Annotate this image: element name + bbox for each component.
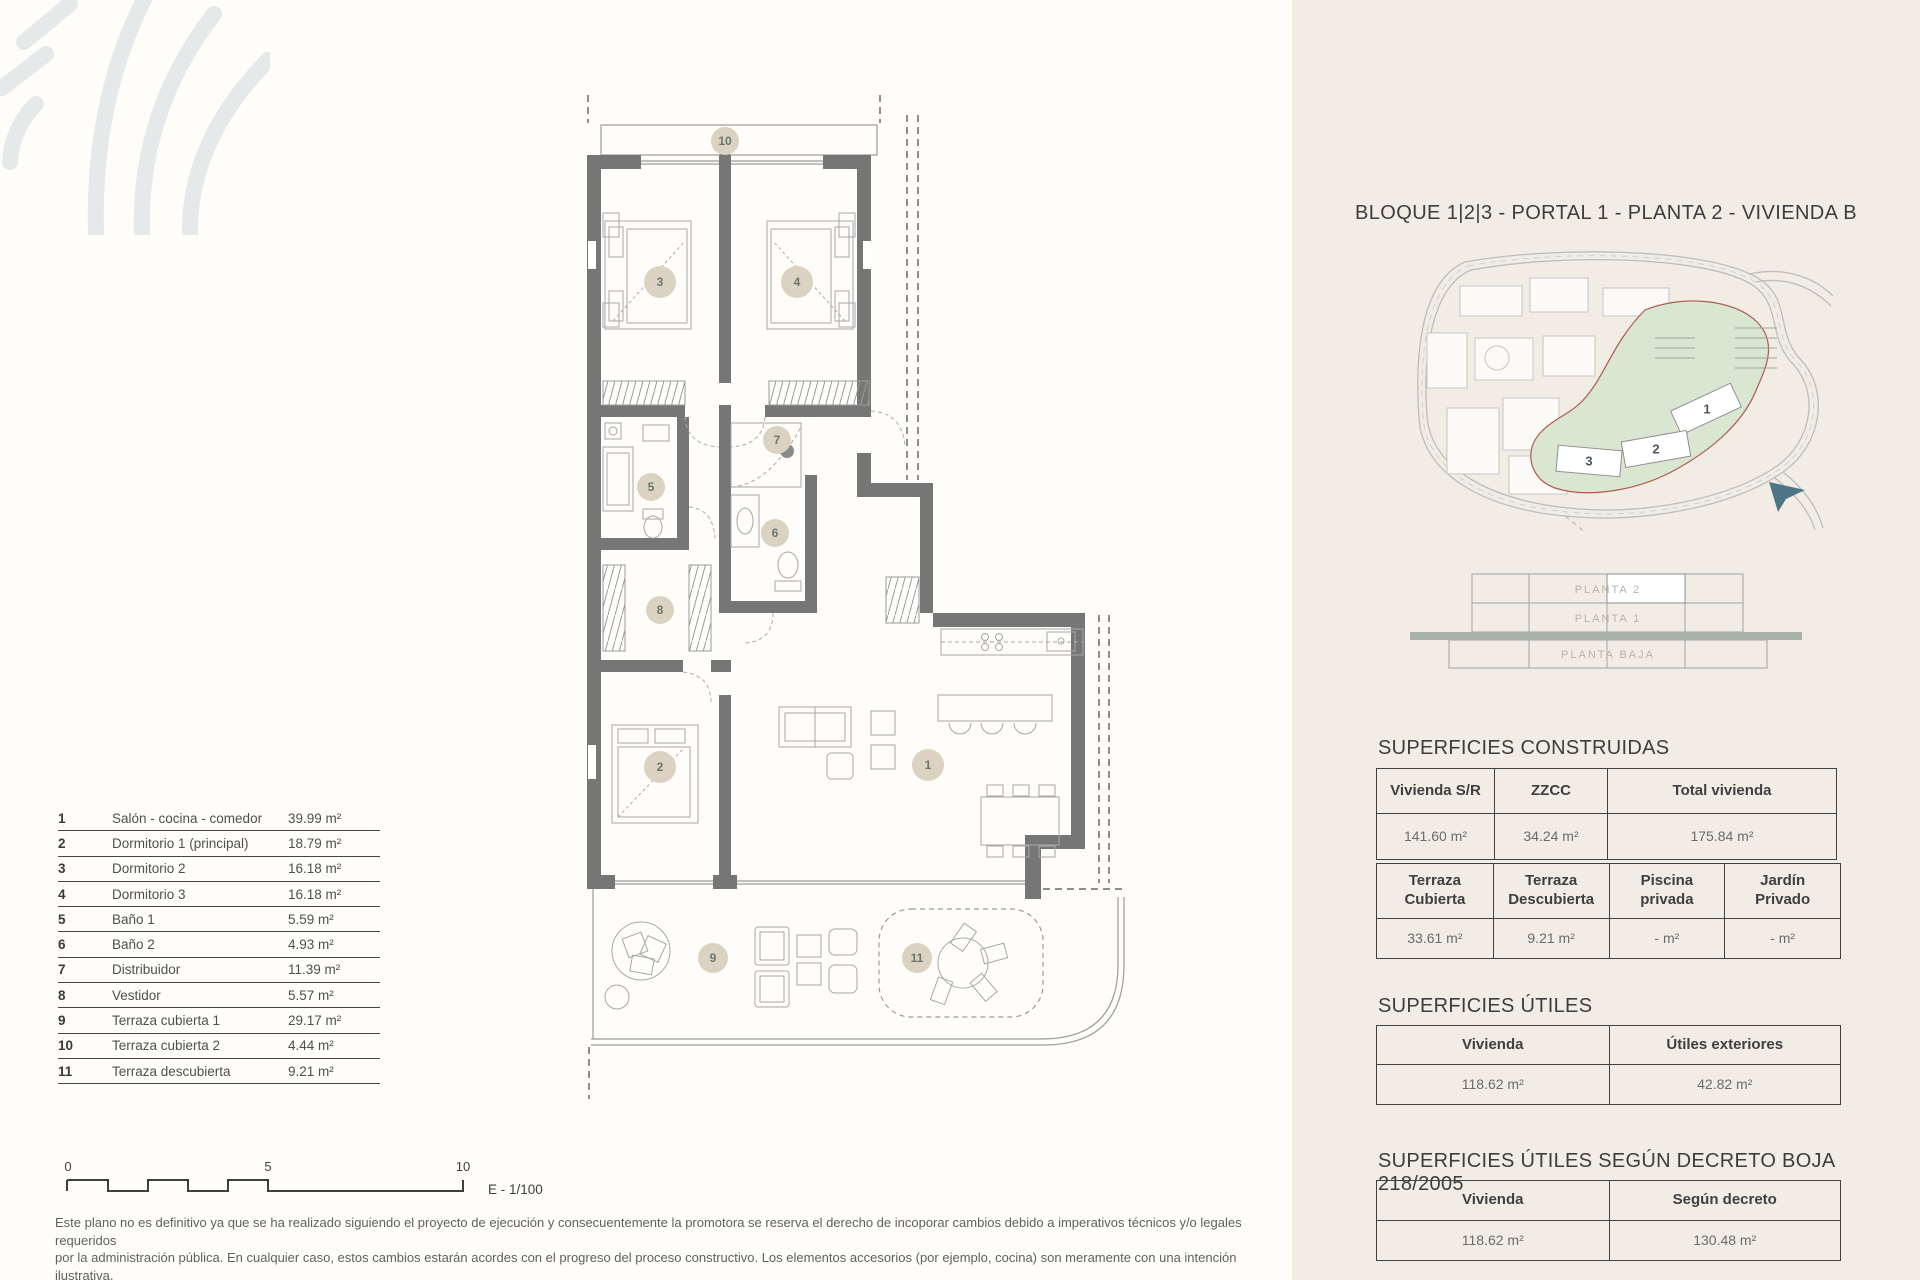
room-badge-9: 9 [710, 951, 717, 965]
col-header: Piscina privada [1609, 864, 1725, 918]
col-header: Útiles exteriores [1609, 1026, 1841, 1064]
door-arcs [683, 411, 905, 703]
table-value: - m² [1609, 918, 1725, 958]
table-value: 118.62 m² [1377, 1220, 1609, 1260]
legend-row: 3Dormitorio 216.18 m² [58, 857, 380, 882]
legend-row: 2Dormitorio 1 (principal)18.79 m² [58, 831, 380, 856]
legend-row: 6Baño 24.93 m² [58, 932, 380, 957]
table-construidas-exterior: Terraza Cubierta Terraza Descubierta Pis… [1376, 863, 1841, 959]
legend-row: 8Vestidor5.57 m² [58, 983, 380, 1008]
block-label-1: 1 [1703, 402, 1710, 417]
table-value: 34.24 m² [1494, 813, 1607, 859]
living-furniture [779, 707, 1059, 857]
scale-tick-10: 10 [456, 1159, 470, 1174]
table-value: - m² [1724, 918, 1840, 958]
kitchen [938, 629, 1083, 734]
legend-row: 7Distribuidor11.39 m² [58, 958, 380, 983]
scale-tick-0: 0 [64, 1159, 71, 1174]
table-value: 42.82 m² [1609, 1064, 1841, 1104]
table-value: 175.84 m² [1607, 813, 1836, 859]
col-header: Según decreto [1609, 1181, 1841, 1220]
terrace-outline [591, 889, 1124, 1045]
scale-ratio-label: E - 1/100 [488, 1182, 543, 1197]
col-header: Vivienda [1377, 1181, 1609, 1220]
stack-level-planta-baja: PLANTA BAJA [1561, 649, 1655, 661]
legend-row: 1Salón - cocina - comedor39.99 m² [58, 806, 380, 831]
scale-bar: 0 5 10 E - 1/100 [60, 1158, 620, 1204]
legend-row: 4Dormitorio 316.18 m² [58, 882, 380, 907]
bedroom-3-furniture [603, 213, 691, 329]
room-badge-1: 1 [925, 758, 932, 772]
terrace-furniture [605, 922, 1008, 1009]
unit-title: BLOQUE 1|2|3 - PORTAL 1 - PLANTA 2 - VIV… [1292, 202, 1920, 225]
info-panel: BLOQUE 1|2|3 - PORTAL 1 - PLANTA 2 - VIV… [1292, 0, 1920, 1280]
room-legend: 1Salón - cocina - comedor39.99 m² 2Dormi… [58, 806, 380, 1084]
col-header: Vivienda [1377, 1026, 1609, 1064]
ground-line [1410, 632, 1802, 640]
disclaimer: Este plano no es definitivo ya que se ha… [55, 1214, 1270, 1280]
heading-superficies-construidas: SUPERFICIES CONSTRUIDAS [1378, 737, 1669, 760]
block-label-2: 2 [1652, 442, 1659, 457]
room-badge-11: 11 [911, 951, 924, 965]
col-header: Jardín Privado [1724, 864, 1840, 918]
legend-row: 5Baño 15.59 m² [58, 907, 380, 932]
col-header: Terraza Descubierta [1493, 864, 1609, 918]
floor-plan: 1 2 3 4 5 6 7 8 9 10 11 [573, 95, 1183, 1105]
legend-row: 10Terraza cubierta 24.44 m² [58, 1034, 380, 1059]
terrace-10-outline [601, 125, 877, 155]
table-value: 118.62 m² [1377, 1064, 1609, 1104]
legend-row: 9Terraza cubierta 129.17 m² [58, 1008, 380, 1033]
glazing [615, 161, 1025, 884]
col-header: Total vivienda [1607, 769, 1836, 813]
room-badge-4: 4 [794, 275, 801, 289]
stack-level-planta-1: PLANTA 1 [1575, 613, 1642, 625]
table-value: 33.61 m² [1377, 918, 1493, 958]
table-decreto: Vivienda Según decreto 118.62 m² 130.48 … [1376, 1180, 1841, 1261]
stack-level-planta-2: PLANTA 2 [1575, 584, 1642, 596]
site-highlight-parcel: 1 2 3 [1531, 301, 1777, 493]
scale-tick-5: 5 [264, 1159, 271, 1174]
room-badge-3: 3 [657, 275, 664, 289]
room-badge-8: 8 [657, 603, 664, 617]
col-header: Terraza Cubierta [1377, 864, 1493, 918]
bedroom-4-furniture [767, 213, 855, 329]
room-badge-5: 5 [648, 480, 655, 494]
table-construidas-main: Vivienda S/R ZZCC Total vivienda 141.60 … [1376, 768, 1837, 860]
col-header: ZZCC [1494, 769, 1607, 813]
col-header: Vivienda S/R [1377, 769, 1494, 813]
table-value: 141.60 m² [1377, 813, 1494, 859]
site-plan: 1 2 3 [1405, 248, 1835, 533]
floor-stack-diagram: PLANTA 2 PLANTA 1 PLANTA BAJA [1408, 565, 1808, 675]
block-label-3: 3 [1585, 454, 1592, 469]
legend-row: 11Terraza descubierta9.21 m² [58, 1059, 380, 1084]
heading-superficies-utiles: SUPERFICIES ÚTILES [1378, 995, 1592, 1018]
disclaimer-line-1: Este plano no es definitivo ya que se ha… [55, 1214, 1270, 1249]
room-badge-7: 7 [774, 433, 781, 447]
room-badge-6: 6 [772, 526, 779, 540]
brand-logo-icon [0, 0, 270, 235]
table-utiles: Vivienda Útiles exteriores 118.62 m² 42.… [1376, 1025, 1841, 1105]
room-badge-10: 10 [718, 134, 732, 148]
table-value: 130.48 m² [1609, 1220, 1841, 1260]
room-badge-2: 2 [657, 760, 664, 774]
brochure-page: 1 2 3 4 5 6 7 8 9 10 11 1Salón - cocina … [0, 0, 1920, 1280]
table-value: 9.21 m² [1493, 918, 1609, 958]
disclaimer-line-2: por la administración pública. En cualqu… [55, 1249, 1270, 1280]
